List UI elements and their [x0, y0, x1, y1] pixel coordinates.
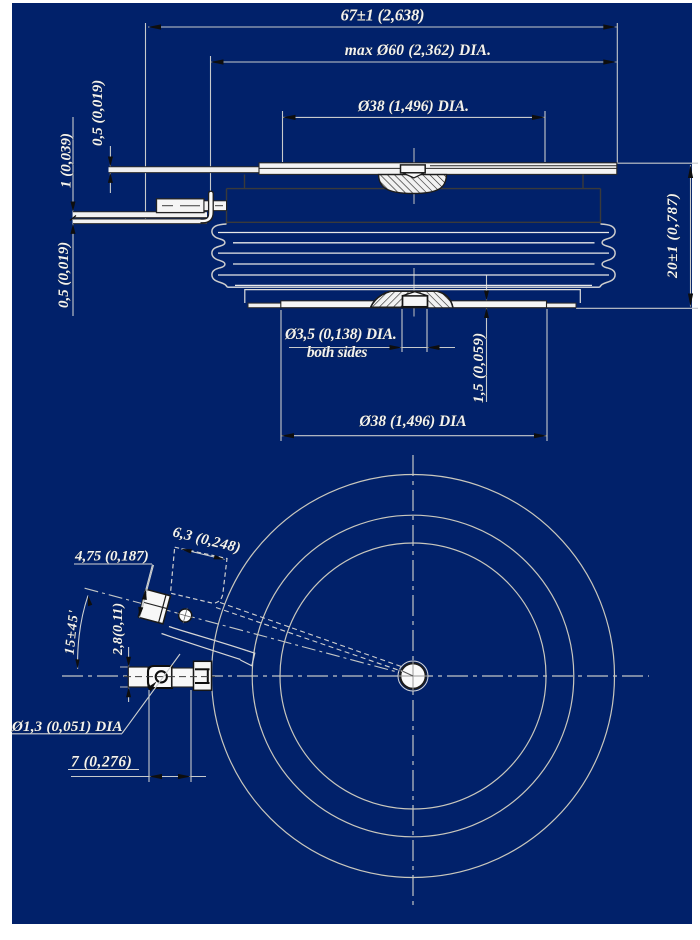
svg-text:2,8(0,11): 2,8(0,11)	[111, 603, 126, 656]
svg-text:0,5 (0,019): 0,5 (0,019)	[56, 242, 72, 308]
svg-text:Ø38 (1,496) DIA.: Ø38 (1,496) DIA.	[357, 98, 469, 115]
svg-text:1,5 (0,059): 1,5 (0,059)	[471, 332, 487, 403]
svg-text:7 (0,276): 7 (0,276)	[71, 754, 132, 771]
svg-text:20±1 (0,787): 20±1 (0,787)	[665, 193, 681, 279]
svg-text:Ø3,5 (0,138) DIA.: Ø3,5 (0,138) DIA.	[284, 326, 397, 343]
svg-text:Ø1,3 (0,051) DIA: Ø1,3 (0,051) DIA	[11, 719, 123, 735]
svg-text:both sides: both sides	[307, 344, 368, 361]
svg-text:4,75 (0,187): 4,75 (0,187)	[74, 549, 149, 565]
svg-text:67±1 (2,638): 67±1 (2,638)	[341, 6, 425, 25]
svg-text:Ø38 (1,496) DIA: Ø38 (1,496) DIA	[358, 413, 466, 430]
svg-text:1 (0,039): 1 (0,039)	[59, 133, 75, 188]
svg-text:max Ø60 (2,362) DIA.: max Ø60 (2,362) DIA.	[345, 42, 492, 59]
svg-text:0,5 (0,019): 0,5 (0,019)	[90, 80, 106, 146]
